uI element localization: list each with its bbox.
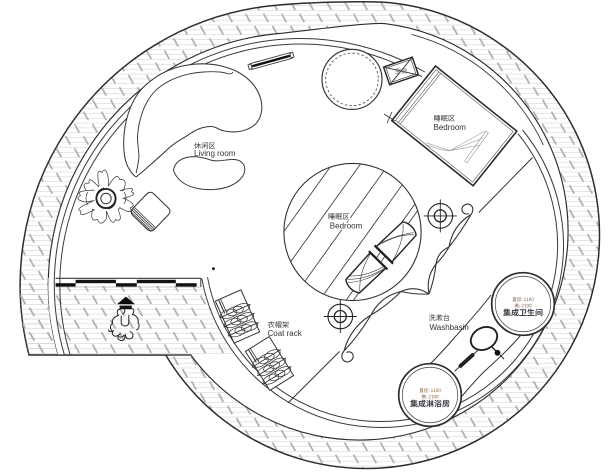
svg-text:Bedroom: Bedroom [330, 222, 363, 231]
svg-text:Living room: Living room [194, 149, 236, 158]
svg-text:Bedroom: Bedroom [434, 123, 467, 132]
svg-text:Coat rack: Coat rack [268, 329, 303, 338]
svg-text:Washbasin: Washbasin [430, 323, 469, 332]
